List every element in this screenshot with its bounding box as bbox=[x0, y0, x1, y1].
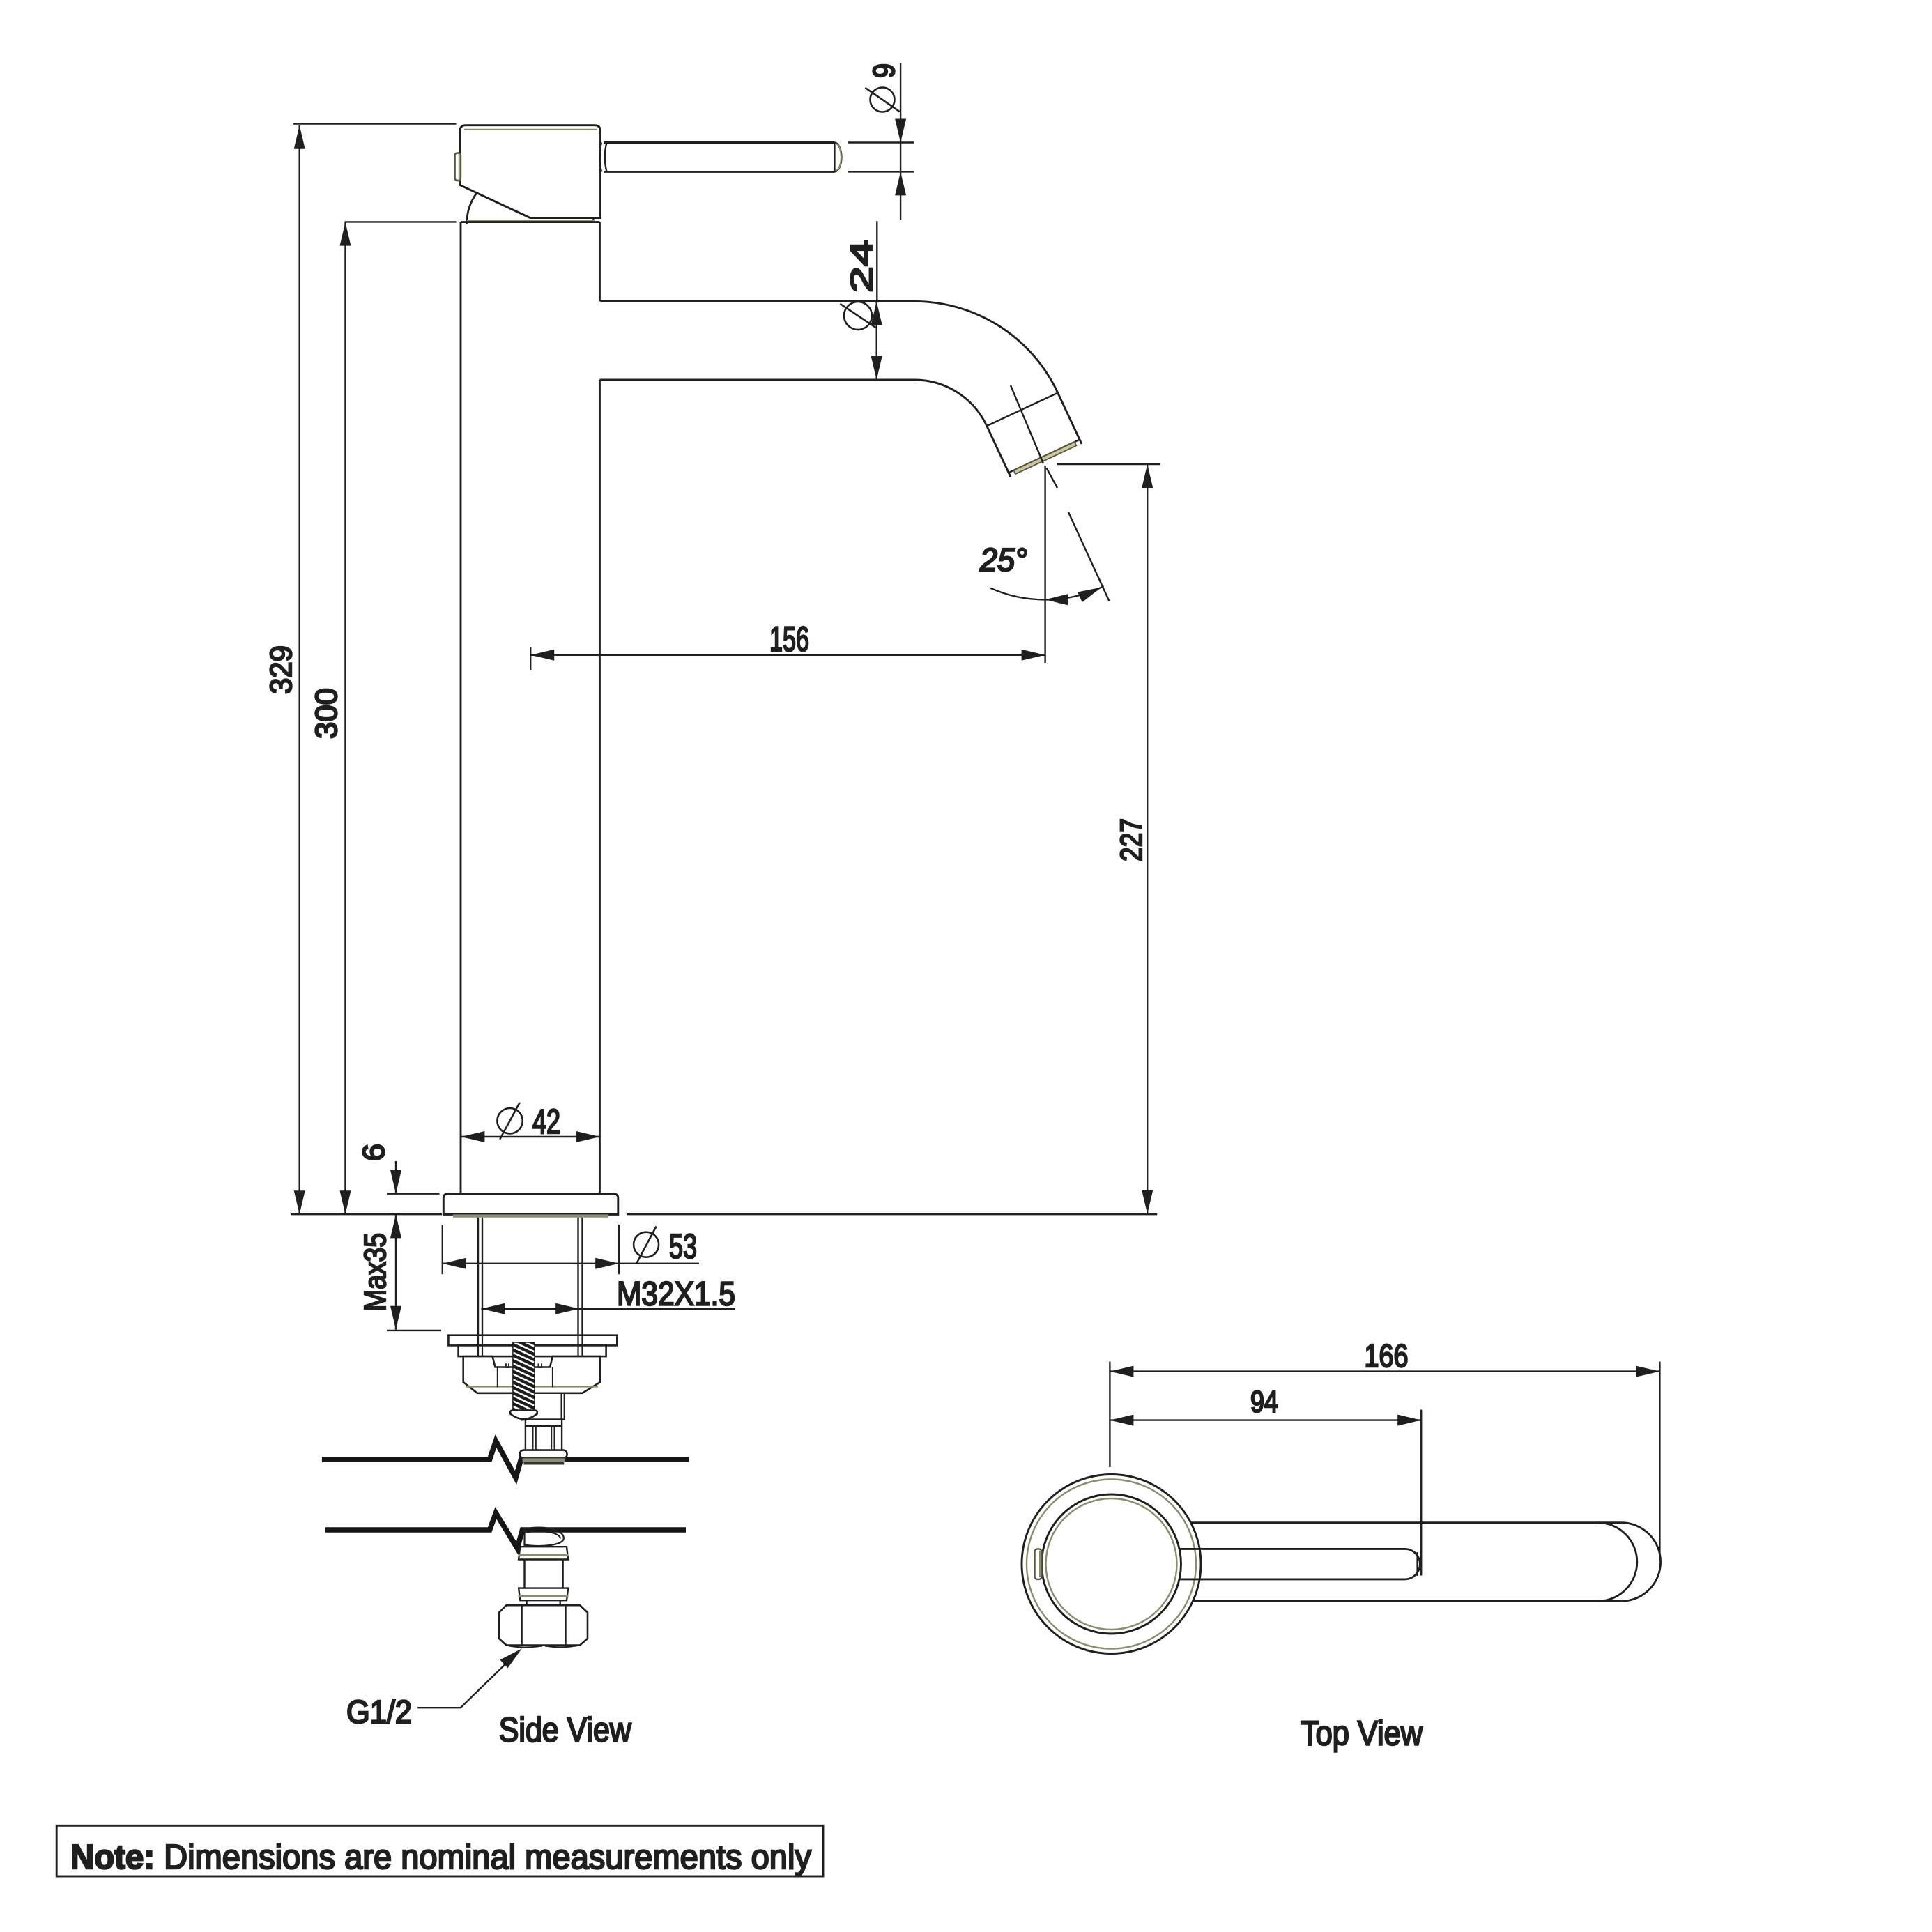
svg-text:25°: 25° bbox=[979, 542, 1027, 578]
svg-text:53: 53 bbox=[669, 1228, 697, 1266]
svg-text:Note: Dimensions are nominal m: Note: Dimensions are nominal measurement… bbox=[70, 1839, 811, 1876]
svg-text:300: 300 bbox=[309, 688, 344, 739]
svg-text:329: 329 bbox=[264, 645, 298, 694]
svg-text:G1/2: G1/2 bbox=[346, 1694, 412, 1730]
svg-text:Top View: Top View bbox=[1301, 1715, 1423, 1753]
svg-text:M32X1.5: M32X1.5 bbox=[617, 1276, 735, 1313]
svg-text:166: 166 bbox=[1365, 1337, 1409, 1374]
svg-text:24: 24 bbox=[845, 240, 879, 293]
svg-text:42: 42 bbox=[532, 1103, 560, 1141]
svg-text:94: 94 bbox=[1250, 1385, 1278, 1419]
svg-text:Max35: Max35 bbox=[358, 1233, 392, 1311]
svg-text:227: 227 bbox=[1114, 818, 1149, 861]
svg-text:9: 9 bbox=[867, 63, 901, 78]
svg-text:6: 6 bbox=[357, 1144, 391, 1161]
svg-text:Side View: Side View bbox=[499, 1712, 632, 1749]
svg-text:156: 156 bbox=[769, 620, 809, 659]
